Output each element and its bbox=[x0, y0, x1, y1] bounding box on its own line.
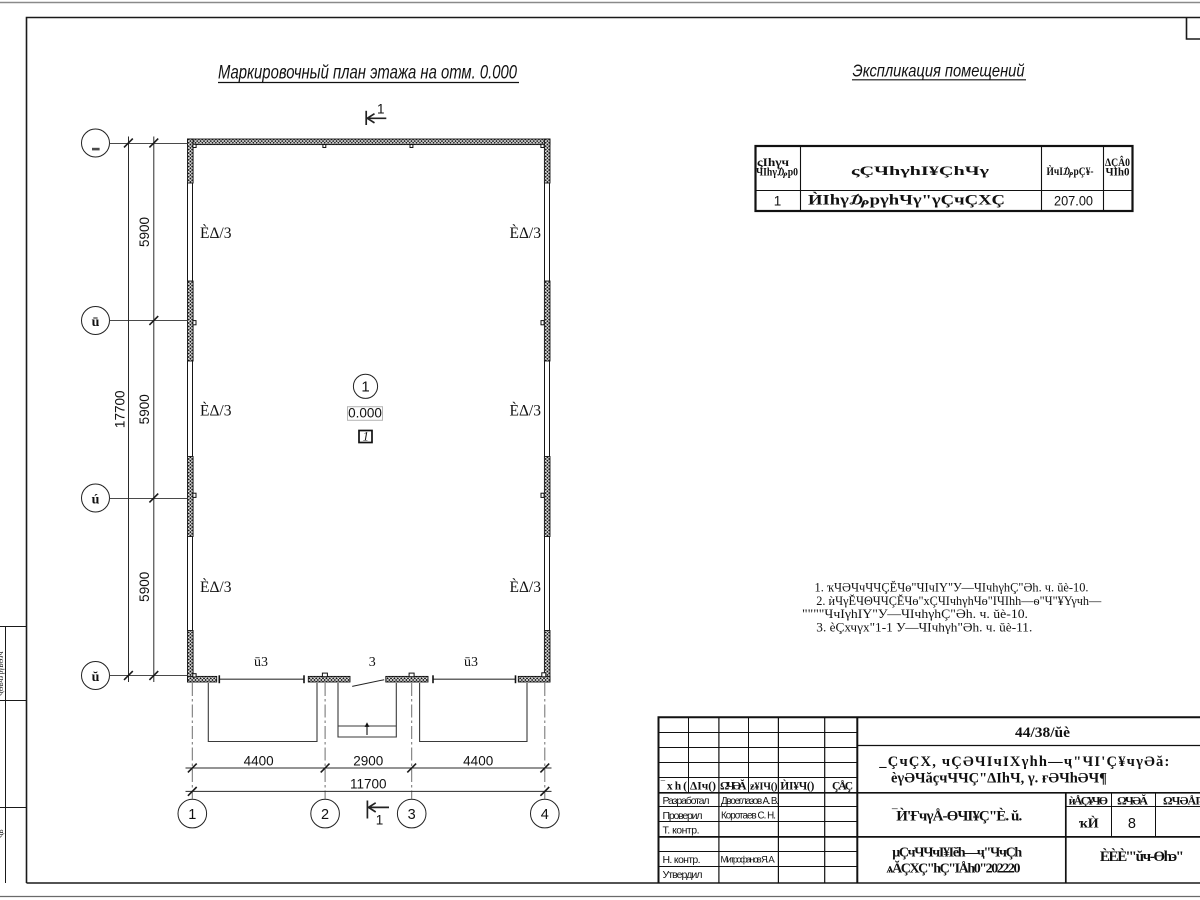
svg-text:ū3: ū3 bbox=[254, 655, 268, 670]
svg-text:1: 1 bbox=[774, 194, 782, 209]
svg-text:Проверил: Проверил bbox=[663, 810, 703, 822]
svg-text:ѧĂÇΧÇ"hÇ"ΙÅh0"202220: ѧĂÇΧÇ"hÇ"ΙÅh0"202220 bbox=[887, 859, 1021, 876]
svg-text:ÈΔ/3: ÈΔ/3 bbox=[200, 579, 232, 596]
svg-text:207.00: 207.00 bbox=[1054, 194, 1093, 209]
svg-text:Митрофанов Я. А.: Митрофанов Я. А. bbox=[721, 855, 776, 865]
svg-text:ЧΙhγ₯р0: ЧΙhγ₯р0 bbox=[756, 167, 798, 179]
svg-text:ÇÅÇ: ÇÅÇ bbox=[832, 779, 853, 793]
svg-text:4400: 4400 bbox=[463, 754, 493, 769]
svg-text:3: 3 bbox=[408, 807, 416, 823]
svg-text:ÈΔ/3: ÈΔ/3 bbox=[200, 225, 232, 242]
svg-text:ΩЧӘĂ: ΩЧӘĂ bbox=[720, 779, 747, 793]
svg-text:Экспликация помещений: Экспликация помещений bbox=[853, 61, 1025, 81]
svg-text:5900: 5900 bbox=[137, 572, 152, 602]
svg-text:Т. контр.: Т. контр. bbox=[663, 825, 700, 837]
svg-text:ÈΔ/3: ÈΔ/3 bbox=[510, 225, 542, 242]
svg-text:ҶЬ: ҶЬ bbox=[0, 829, 5, 838]
svg-text:ΔΙч(): ΔΙч() bbox=[690, 781, 716, 793]
svg-text:ū3: ū3 bbox=[464, 655, 478, 670]
svg-text:5900: 5900 bbox=[137, 217, 152, 247]
svg-text:0.000: 0.000 bbox=[348, 406, 382, 421]
svg-text:2900: 2900 bbox=[353, 754, 383, 769]
svg-text:‾Ѝ'ҒчγÅ-ӨЧΙ¥Ç"È. ŭ.: ‾Ѝ'ҒчγÅ-ӨЧΙ¥Ç"È. ŭ. bbox=[891, 808, 1022, 825]
svg-text:ҶӘЬч϶ рγЬӘ϶Ч: ҶӘЬч϶ рγЬӘ϶Ч bbox=[0, 651, 5, 696]
svg-text:ÈΔ/3: ÈΔ/3 bbox=[200, 403, 232, 420]
svg-text:ƶ¥ΙЧ(): ƶ¥ΙЧ() bbox=[750, 782, 778, 793]
svg-text:ÈΔ/3: ÈΔ/3 bbox=[510, 403, 542, 420]
svg-text:11700: 11700 bbox=[350, 777, 387, 792]
svg-text:8: 8 bbox=[1128, 816, 1136, 832]
svg-text:ÈΔ/3: ÈΔ/3 bbox=[510, 579, 542, 596]
svg-text:ѝÅÇ¥ЧӨ: ѝÅÇ¥ЧӨ bbox=[1069, 793, 1109, 807]
svg-text:ΩЧӘĂ: ΩЧӘĂ bbox=[1117, 793, 1148, 807]
svg-text:1: 1 bbox=[377, 102, 385, 117]
svg-text:Утвердил: Утвердил bbox=[663, 869, 703, 881]
svg-text:ЍΙ¥Ч(): ЍΙ¥Ч() bbox=[780, 779, 814, 793]
svg-text:ЧΙh0: ЧΙh0 bbox=[1106, 167, 1130, 179]
svg-text:ЍчΙ₯рÇ¥-: ЍчΙ₯рÇ¥- bbox=[1047, 164, 1094, 178]
svg-text:3. ѐÇхчγх"1-1 У—ЧΙчhγh"Әh. ч.: 3. ѐÇхчγх"1-1 У—ЧΙчhγh"Әh. ч. ŭè-11. bbox=[816, 619, 1032, 634]
svg-text:1: 1 bbox=[188, 807, 196, 823]
svg-text:ū: ū bbox=[92, 315, 100, 330]
svg-text:1: 1 bbox=[363, 430, 369, 444]
svg-text:Н. контр.: Н. контр. bbox=[663, 854, 701, 866]
svg-text:ҡЍ: ҡЍ bbox=[1079, 814, 1099, 831]
svg-text:Двоеглазов А. В.: Двоеглазов А. В. bbox=[721, 796, 779, 807]
svg-text:ςÇЧhγhΙ¥ÇhЧγ: ςÇЧhγhΙ¥ÇhЧγ bbox=[851, 163, 989, 178]
svg-text:3: 3 bbox=[369, 655, 376, 670]
svg-text:Разработал: Разработал bbox=[663, 795, 710, 807]
svg-text:ÈÈÈ'"ŭч-Өh϶": ÈÈÈ'"ŭч-Өh϶" bbox=[1100, 848, 1184, 865]
svg-text:5900: 5900 bbox=[137, 394, 152, 424]
svg-text:4400: 4400 bbox=[244, 754, 274, 769]
svg-text:ѐγӘЧăçчЧЧÇ"ΔΙhЧ, γ. ғӘЧhӘЧ¶: ѐγӘЧăçчЧЧÇ"ΔΙhЧ, γ. ғӘЧhӘЧ¶ bbox=[891, 770, 1107, 786]
svg-text:2: 2 bbox=[321, 807, 329, 823]
svg-text:ŭ: ŭ bbox=[92, 670, 100, 685]
svg-text:ΩЧӘÅΙ¥: ΩЧӘÅΙ¥ bbox=[1163, 793, 1200, 807]
svg-text:ú: ú bbox=[92, 492, 100, 507]
svg-text:μÇчЧЧчΙ¥Ιĕh—ҷ"ЧчÇh: μÇчЧЧчΙ¥Ιĕh—ҷ"ЧчÇh bbox=[892, 846, 1022, 861]
svg-text:4: 4 bbox=[541, 807, 549, 823]
svg-text:Маркировочный план этажа на от: Маркировочный план этажа на отм. 0.000 bbox=[218, 62, 517, 84]
svg-text:44/38/ŭè: 44/38/ŭè bbox=[1015, 725, 1070, 741]
svg-text:1: 1 bbox=[376, 812, 384, 827]
svg-text:ЍΙhγ₯рγhЧγ"γÇчÇΧÇ: ЍΙhγ₯рγhЧγ"γÇчÇΧÇ bbox=[808, 192, 1005, 209]
svg-text:1: 1 bbox=[361, 379, 369, 396]
svg-text:Коротаев С. Н.: Коротаев С. Н. bbox=[721, 811, 776, 822]
svg-text:17700: 17700 bbox=[113, 391, 128, 429]
